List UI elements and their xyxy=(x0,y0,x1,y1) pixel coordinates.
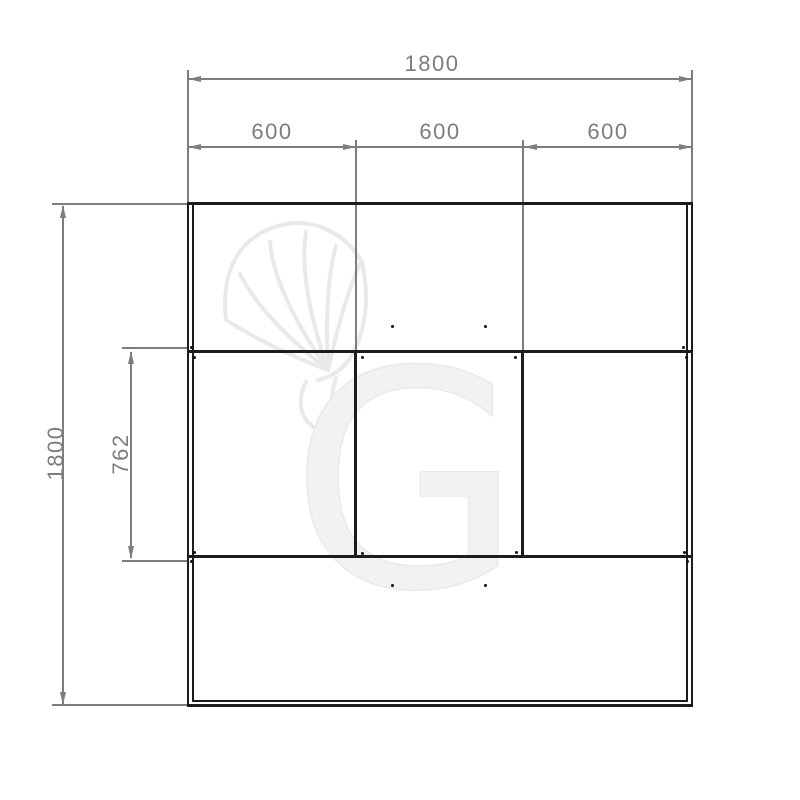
junction-dot xyxy=(683,551,686,554)
junction-dot xyxy=(193,551,196,554)
extension-line xyxy=(187,70,189,203)
extension-line xyxy=(122,560,188,562)
junction-dot xyxy=(193,356,196,359)
frame-left-inner-line xyxy=(192,204,194,702)
frame-right-inner-line xyxy=(686,204,688,702)
fixing-dot xyxy=(391,325,394,328)
dim-line-top-total xyxy=(188,78,692,80)
arrowhead-up-icon xyxy=(60,205,66,218)
junction-dot xyxy=(514,356,517,359)
junction-dot xyxy=(190,560,193,563)
shelf-lower-line xyxy=(187,555,693,558)
fixing-dot xyxy=(484,584,487,587)
extension-line xyxy=(355,140,357,352)
arrowhead-up-icon xyxy=(128,351,134,364)
extension-line xyxy=(52,704,188,706)
arrowhead-left-icon xyxy=(188,76,201,82)
frame-bottom-edge xyxy=(187,704,693,707)
divider-right-line xyxy=(521,350,524,558)
extension-line xyxy=(691,70,693,203)
frame-top-edge xyxy=(187,202,693,205)
watermark-logo: G xyxy=(178,198,542,630)
extension-line xyxy=(52,203,188,205)
dim-label-segment-3: 600 xyxy=(568,121,648,143)
frame-left-outer-line xyxy=(187,202,189,707)
fixing-dot xyxy=(484,325,487,328)
junction-dot xyxy=(515,551,518,554)
dim-label-top-total: 1800 xyxy=(392,53,472,75)
shelf-upper-line xyxy=(187,350,693,353)
junction-dot xyxy=(361,356,364,359)
arrowhead-left-icon xyxy=(188,144,201,150)
junction-dot xyxy=(190,346,193,349)
junction-dot xyxy=(686,560,689,563)
fixing-dot xyxy=(391,584,394,587)
dim-label-side-total: 1800 xyxy=(45,413,67,493)
arrowhead-down-icon xyxy=(128,546,134,559)
watermark-letter: G xyxy=(290,308,522,630)
junction-dot xyxy=(685,356,688,359)
technical-drawing-canvas: G 1800 600 600 600 1800 762 xyxy=(0,0,800,800)
junction-dot xyxy=(361,552,364,555)
dim-label-segment-1: 600 xyxy=(232,121,312,143)
frame-bottom-inner-line xyxy=(192,700,688,702)
divider-left-line xyxy=(354,350,357,558)
dim-line-top-segments xyxy=(188,146,692,148)
arrowhead-left-icon xyxy=(524,144,537,150)
junction-dot xyxy=(682,346,685,349)
extension-line xyxy=(522,140,524,352)
extension-line xyxy=(122,347,188,349)
dim-label-side-inner: 762 xyxy=(110,414,132,494)
dim-label-segment-2: 600 xyxy=(400,121,480,143)
frame-right-outer-line xyxy=(691,202,693,707)
